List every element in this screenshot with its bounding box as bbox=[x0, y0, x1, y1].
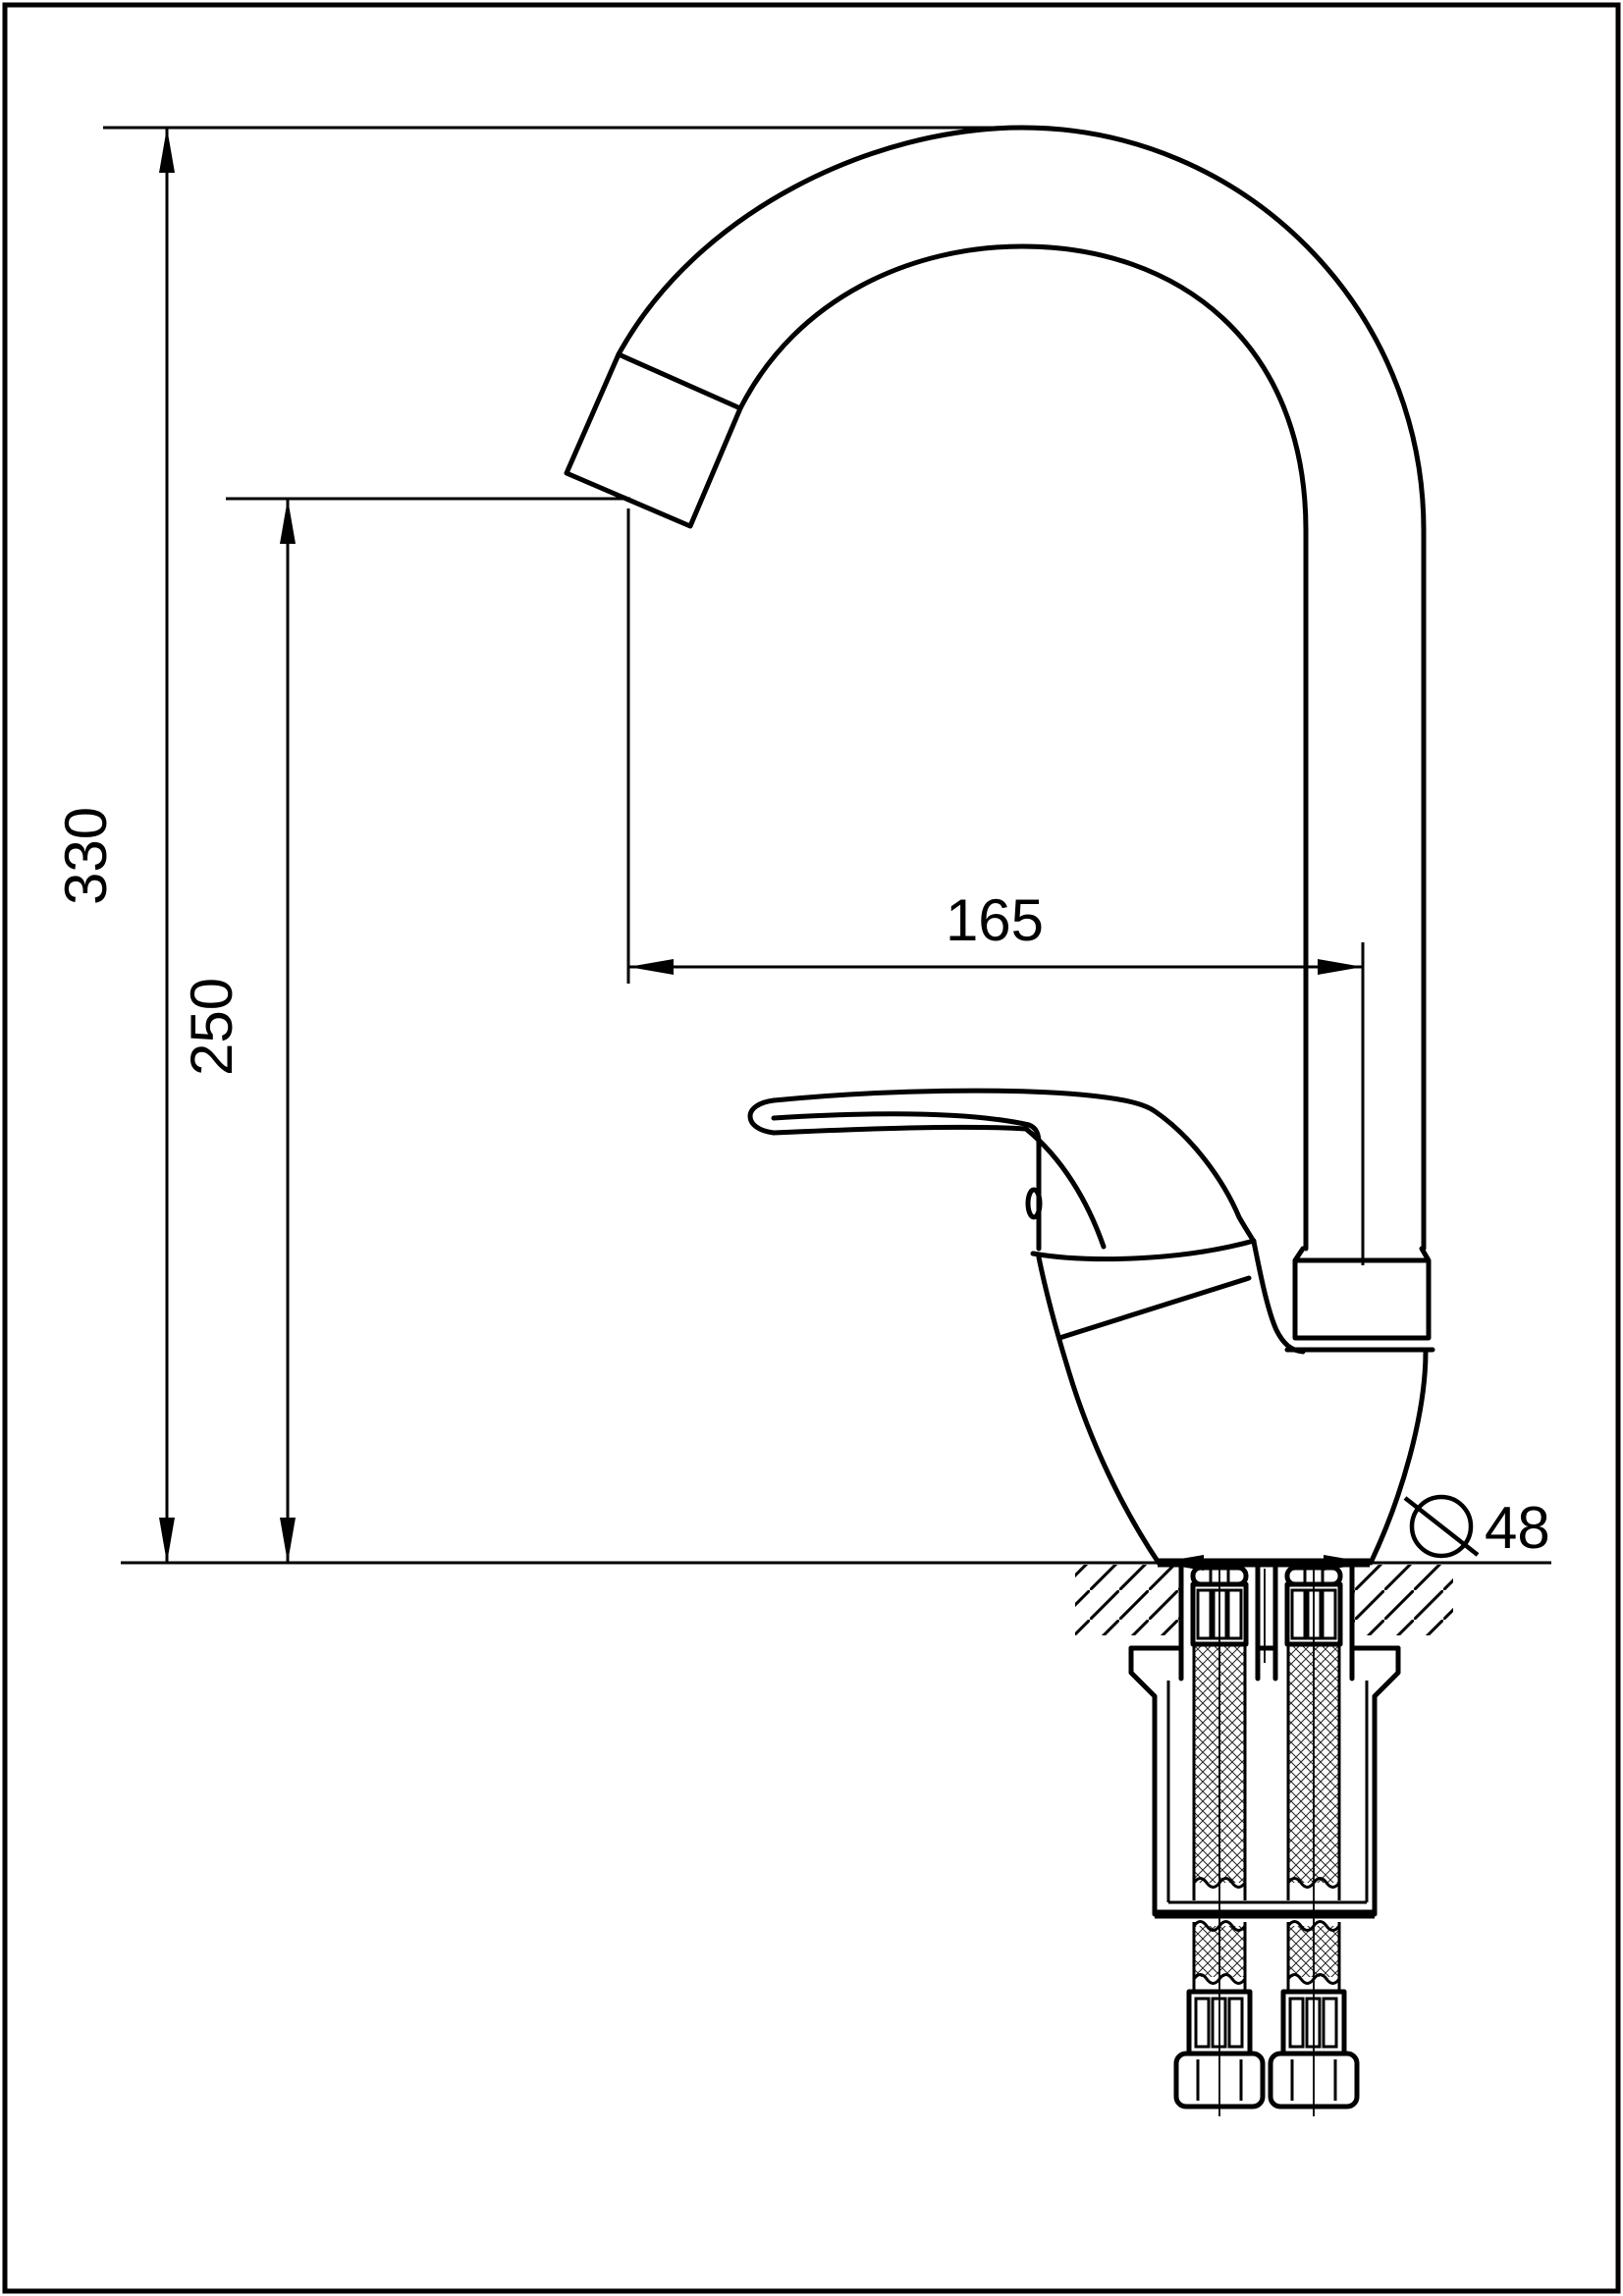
lever-tip-cap bbox=[750, 1100, 774, 1133]
dim-48: 48 bbox=[1158, 1495, 1550, 1571]
slot bbox=[1198, 1590, 1211, 1638]
body-right-edge bbox=[1371, 1352, 1426, 1563]
bracket-left-wall bbox=[1131, 1648, 1155, 1914]
arrow-left-icon bbox=[628, 959, 674, 975]
lever-screw-oval bbox=[1028, 1190, 1040, 1217]
supply-right bbox=[1271, 1567, 1357, 2116]
arrow-down-icon bbox=[159, 1518, 175, 1563]
slot bbox=[1229, 1999, 1242, 2047]
cap-lens-edge bbox=[1033, 1241, 1254, 1259]
faucet-outline bbox=[567, 128, 1433, 1563]
dim-250-label: 250 bbox=[179, 978, 244, 1076]
dim-330: 330 bbox=[53, 128, 1022, 1563]
page-border bbox=[5, 5, 1618, 2291]
slot bbox=[1290, 1999, 1303, 2047]
lever-bottom-crease bbox=[774, 1127, 1104, 1247]
bonnet-seam bbox=[1059, 1278, 1249, 1338]
dim-165-label: 165 bbox=[946, 887, 1044, 953]
arrow-up-icon bbox=[159, 128, 175, 173]
dim-330-label: 330 bbox=[53, 807, 119, 905]
bracket-right-wall bbox=[1375, 1648, 1398, 1914]
slot bbox=[1228, 1590, 1241, 1638]
aerator bbox=[567, 354, 740, 526]
supply-left bbox=[1176, 1567, 1263, 2116]
counter-hatch-left bbox=[1075, 1565, 1181, 1635]
drawing-page: 330 250 165 48 bbox=[0, 0, 1623, 2296]
handle-lever bbox=[750, 1091, 1254, 1258]
slot bbox=[1196, 1999, 1209, 2047]
dim-48-label: 48 bbox=[1485, 1495, 1550, 1561]
body bbox=[1039, 1242, 1426, 1563]
body-left-edge bbox=[1039, 1257, 1159, 1563]
arrow-right-icon bbox=[1318, 959, 1363, 975]
counter-hatch-right bbox=[1352, 1565, 1453, 1635]
dim-250: 250 bbox=[179, 499, 630, 1563]
spout-outer-edge bbox=[619, 128, 1424, 1249]
slot bbox=[1324, 1999, 1336, 2047]
dim-165: 165 bbox=[628, 508, 1363, 1265]
slot bbox=[1323, 1590, 1335, 1638]
mounting-bracket bbox=[1131, 1648, 1398, 1914]
collar bbox=[1287, 1249, 1433, 1350]
lever-mid-edge bbox=[774, 1114, 1039, 1249]
arrow-down-icon bbox=[280, 1518, 296, 1563]
slot bbox=[1292, 1590, 1305, 1638]
mounting-assembly bbox=[1131, 1565, 1398, 2116]
faucet-technical-drawing: 330 250 165 48 bbox=[0, 0, 1623, 2296]
arrow-up-icon bbox=[280, 499, 296, 544]
diameter-icon bbox=[1405, 1497, 1478, 1556]
